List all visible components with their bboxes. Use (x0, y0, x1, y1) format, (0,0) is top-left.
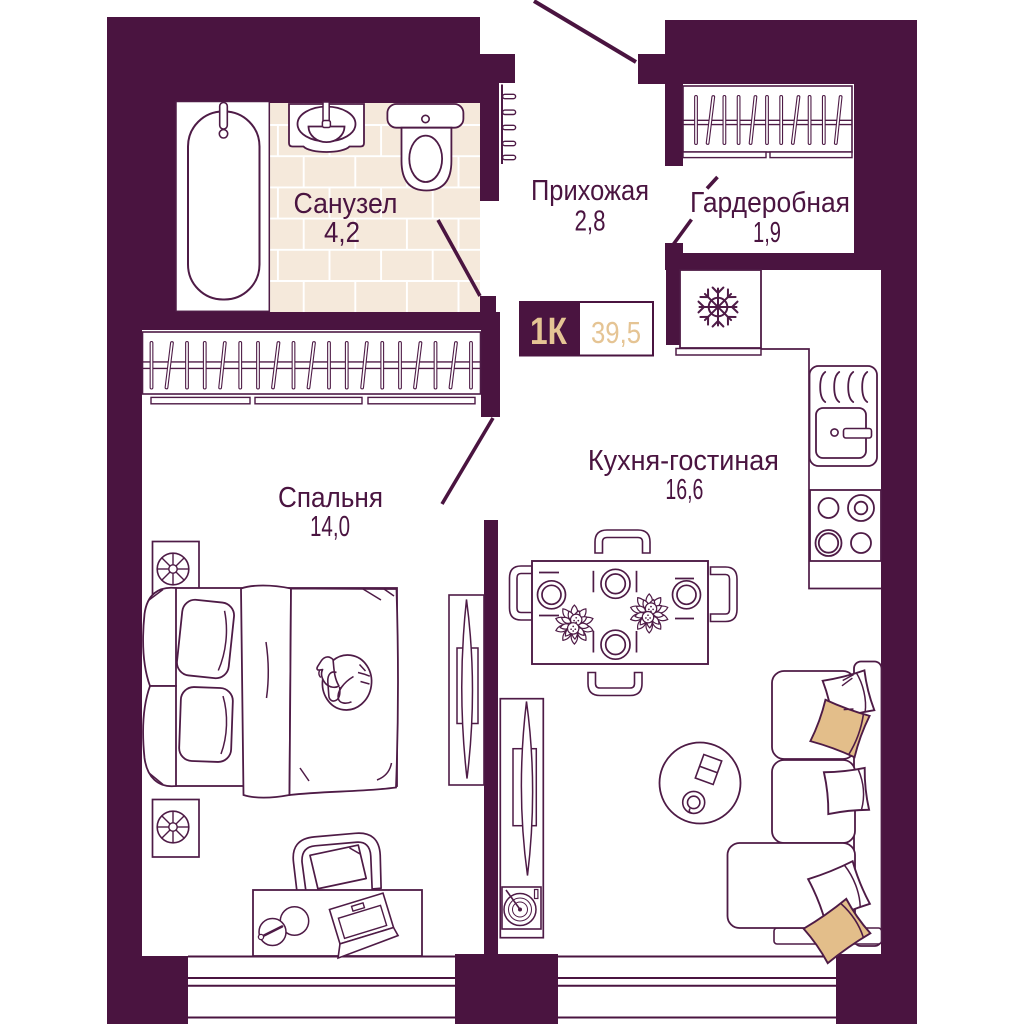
svg-text:1,9: 1,9 (753, 217, 781, 249)
svg-text:39,5: 39,5 (591, 315, 641, 350)
svg-text:Прихожая: Прихожая (531, 175, 649, 207)
svg-text:4,2: 4,2 (324, 217, 360, 249)
svg-text:Санузел: Санузел (294, 188, 398, 220)
svg-text:Спальня: Спальня (278, 482, 383, 514)
svg-text:Гардеробная: Гардеробная (690, 187, 850, 219)
svg-text:Кухня-гостиная: Кухня-гостиная (588, 445, 779, 477)
svg-text:1К: 1К (530, 311, 568, 353)
svg-text:2,8: 2,8 (575, 206, 606, 238)
svg-text:16,6: 16,6 (665, 474, 703, 506)
svg-text:14,0: 14,0 (310, 511, 350, 543)
